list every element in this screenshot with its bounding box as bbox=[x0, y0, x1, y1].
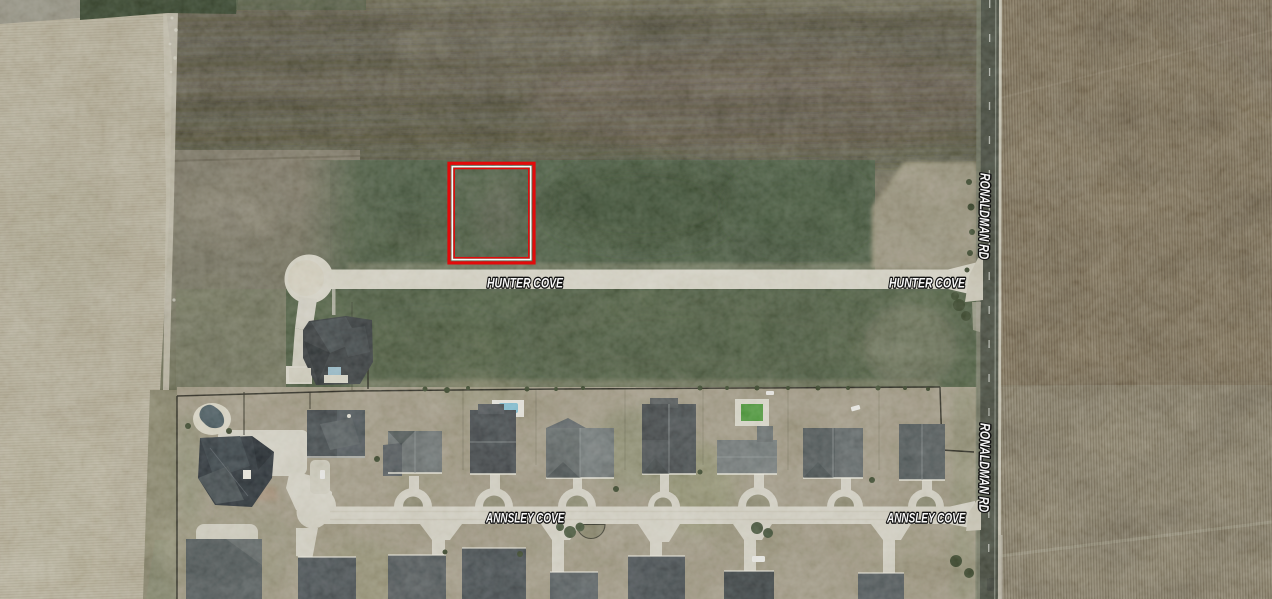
svg-text:ANNSLEY COVE: ANNSLEY COVE bbox=[485, 510, 565, 526]
svg-text:ANNSLEY COVE: ANNSLEY COVE bbox=[886, 510, 966, 526]
svg-text:RONALDMAN RD: RONALDMAN RD bbox=[976, 423, 993, 512]
svg-text:RONALDMAN RD: RONALDMAN RD bbox=[976, 173, 993, 260]
svg-text:HUNTER COVE: HUNTER COVE bbox=[487, 275, 564, 291]
svg-text:HUNTER COVE: HUNTER COVE bbox=[889, 275, 966, 291]
